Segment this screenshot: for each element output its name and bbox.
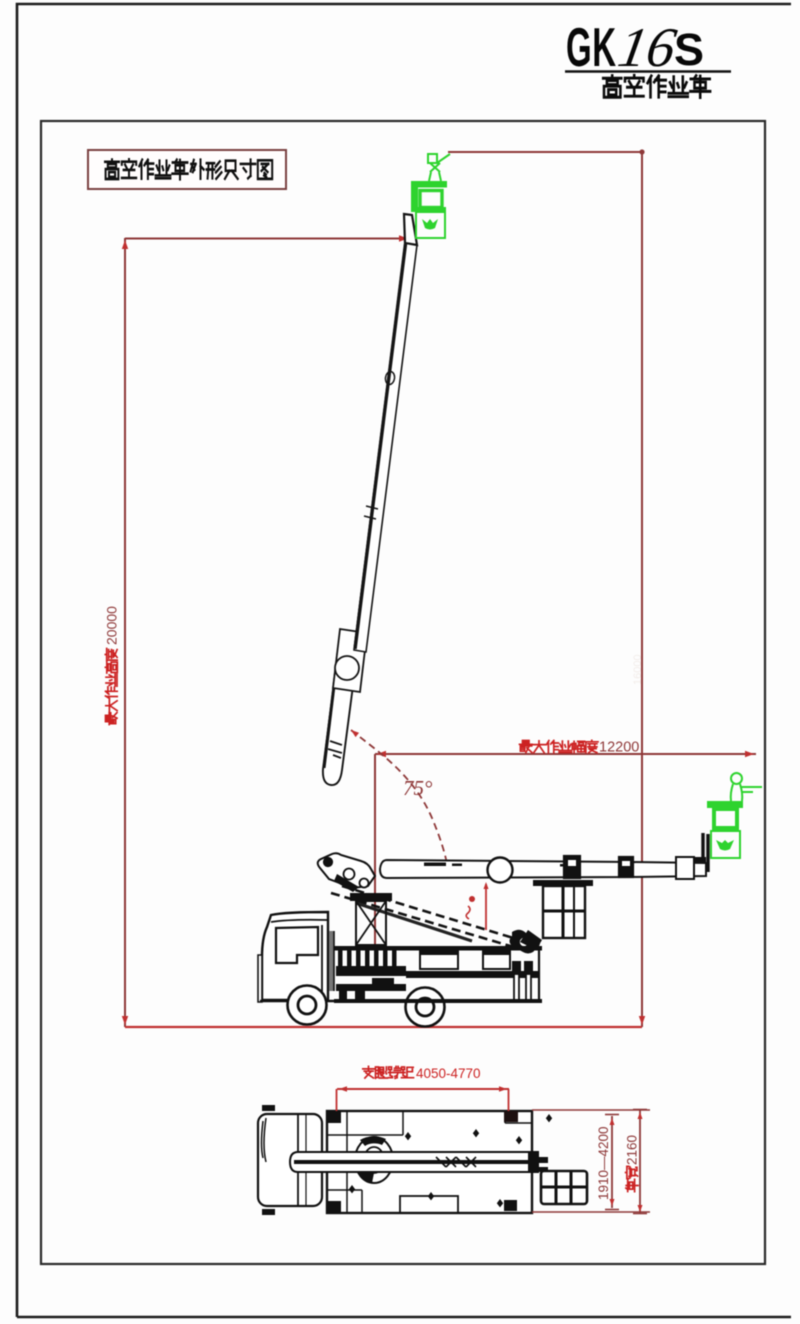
svg-text:16: 16 [614,17,681,79]
svg-text:2160: 2160 [625,1135,640,1165]
svg-text:4050-4770: 4050-4770 [416,1066,481,1081]
svg-text:75°: 75° [403,776,433,800]
svg-text:1910—4200: 1910—4200 [596,1126,611,1200]
svg-text:12200: 12200 [599,740,639,756]
svg-text:GK: GK [566,16,617,78]
svg-text:S: S [674,24,704,75]
svg-text:20000: 20000 [104,606,120,645]
svg-text:16000: 16000 [632,654,644,685]
